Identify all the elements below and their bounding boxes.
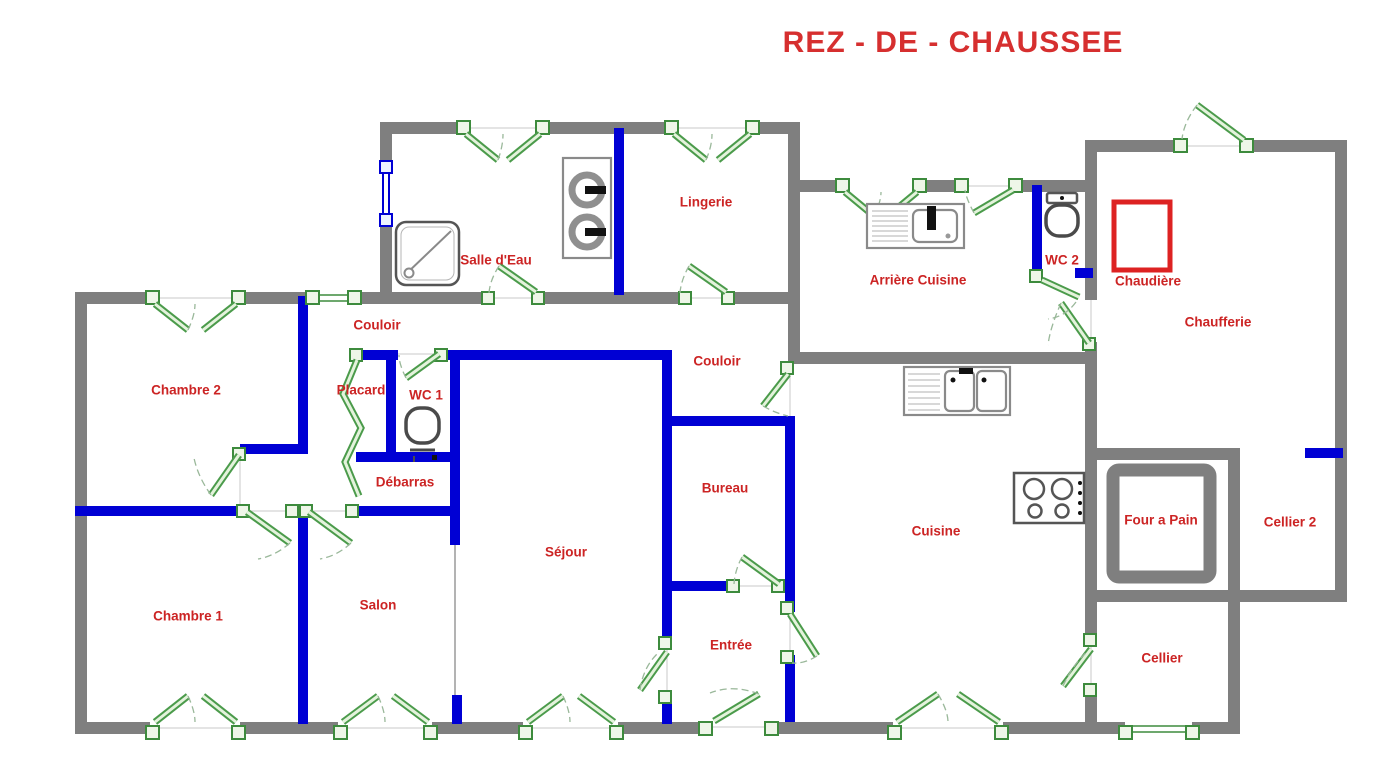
washing-machines-icon bbox=[563, 158, 611, 258]
boiler-icon bbox=[1114, 202, 1170, 270]
window-salle-deau-west bbox=[380, 161, 392, 226]
window-cellier bbox=[1119, 726, 1199, 739]
room-label-chaudiere: Chaudière bbox=[1115, 274, 1181, 289]
room-label-wc2: WC 2 bbox=[1045, 253, 1079, 268]
door-chambre2 bbox=[194, 448, 245, 495]
door-chaufferie-ext bbox=[1174, 105, 1253, 152]
door-salon bbox=[300, 505, 358, 559]
room-label-sejour: Séjour bbox=[545, 545, 587, 560]
window-chambre2 bbox=[146, 291, 245, 330]
room-label-bureau: Bureau bbox=[702, 481, 749, 496]
door-entree-front bbox=[699, 689, 778, 735]
room-label-couloir-est: Couloir bbox=[693, 354, 740, 369]
room-label-chambre2: Chambre 2 bbox=[151, 383, 221, 398]
room-label-lingerie: Lingerie bbox=[680, 195, 733, 210]
door-placard-bifold bbox=[343, 360, 361, 496]
room-label-cellier2: Cellier 2 bbox=[1264, 515, 1317, 530]
window-salon bbox=[334, 696, 437, 739]
door-couloir-cuisine bbox=[763, 362, 793, 416]
window-couloir bbox=[306, 291, 361, 304]
floor-plan-canvas: REZ - DE - CHAUSSEE Salle d'Eau Lingerie… bbox=[0, 0, 1400, 780]
door-sejour-entree bbox=[640, 637, 671, 703]
stove-icon bbox=[1014, 473, 1084, 523]
door-entree-cuisine bbox=[781, 602, 817, 663]
room-label-four-a-pain: Four a Pain bbox=[1124, 513, 1198, 528]
utility-sink-icon bbox=[867, 204, 964, 248]
room-label-cellier: Cellier bbox=[1141, 651, 1182, 666]
room-label-cuisine: Cuisine bbox=[912, 524, 961, 539]
reference-lines bbox=[150, 128, 1247, 728]
window-sejour bbox=[519, 696, 623, 739]
door-chambre1 bbox=[237, 505, 298, 559]
window-lingerie bbox=[665, 121, 759, 160]
room-label-wc1: WC 1 bbox=[409, 388, 443, 403]
room-label-entree: Entrée bbox=[710, 638, 752, 653]
room-label-chambre1: Chambre 1 bbox=[153, 609, 223, 624]
room-label-salle-deau: Salle d'Eau bbox=[460, 253, 532, 268]
door-wc2 bbox=[1030, 270, 1079, 319]
door-chaufferie-arriere-cuisine bbox=[1048, 303, 1095, 350]
window-chambre1 bbox=[146, 696, 245, 739]
room-label-couloir-nord: Couloir bbox=[353, 318, 400, 333]
room-label-arriere-cuisine: Arrière Cuisine bbox=[870, 273, 967, 288]
room-label-debarras: Débarras bbox=[376, 475, 435, 490]
shower-icon bbox=[396, 222, 459, 285]
room-label-salon: Salon bbox=[360, 598, 397, 613]
floor-title: REZ - DE - CHAUSSEE bbox=[783, 26, 1124, 60]
kitchen-sink-icon bbox=[904, 367, 1010, 415]
room-label-placard: Placard bbox=[337, 383, 386, 398]
door-bureau bbox=[727, 557, 784, 592]
room-label-chaufferie: Chaufferie bbox=[1185, 315, 1252, 330]
toilet-wc2-icon bbox=[1046, 193, 1078, 236]
window-cuisine bbox=[888, 694, 1008, 739]
window-salle-deau bbox=[457, 121, 549, 160]
